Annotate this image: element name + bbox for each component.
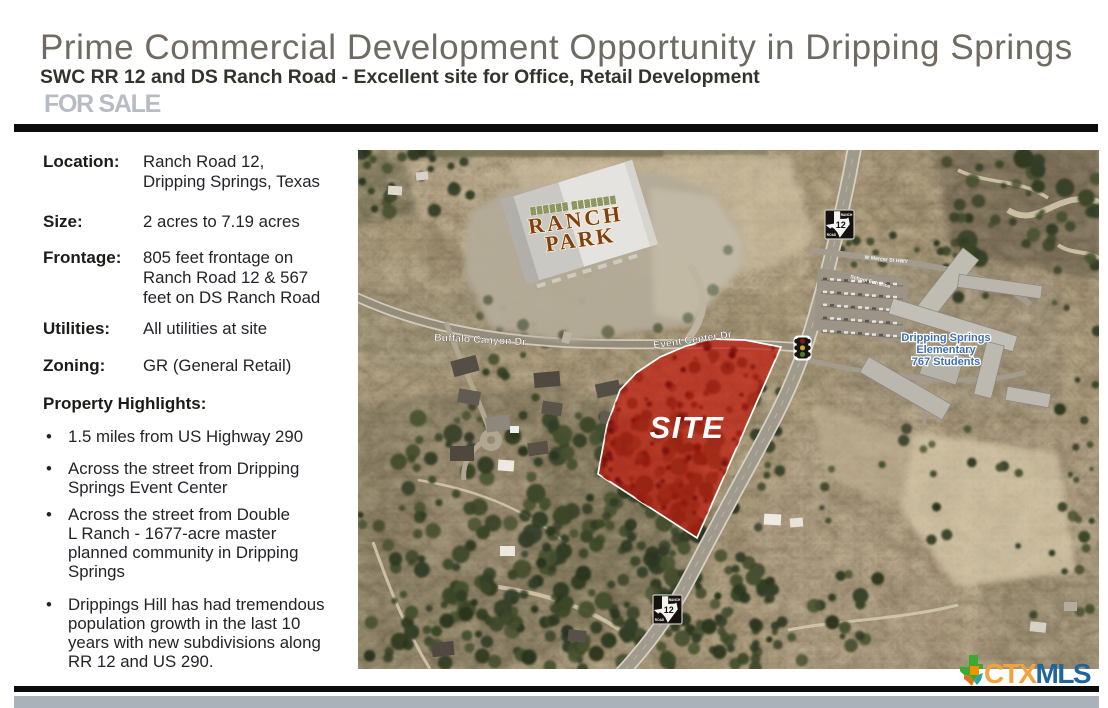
svg-text:CTXMLS: CTXMLS [984, 658, 1091, 689]
svg-text:RANCH: RANCH [669, 598, 681, 602]
svg-text:767 Students: 767 Students [912, 356, 980, 368]
svg-text:RANCH: RANCH [841, 213, 853, 217]
svg-text:Dripping Springs: Dripping Springs [901, 332, 990, 344]
svg-text:SITE: SITE [650, 410, 725, 445]
svg-text:ROAD: ROAD [827, 233, 837, 237]
svg-text:12: 12 [836, 220, 846, 230]
svg-text:ROAD: ROAD [655, 618, 665, 622]
svg-text:12: 12 [664, 605, 674, 615]
svg-text:Elementary: Elementary [916, 344, 976, 356]
